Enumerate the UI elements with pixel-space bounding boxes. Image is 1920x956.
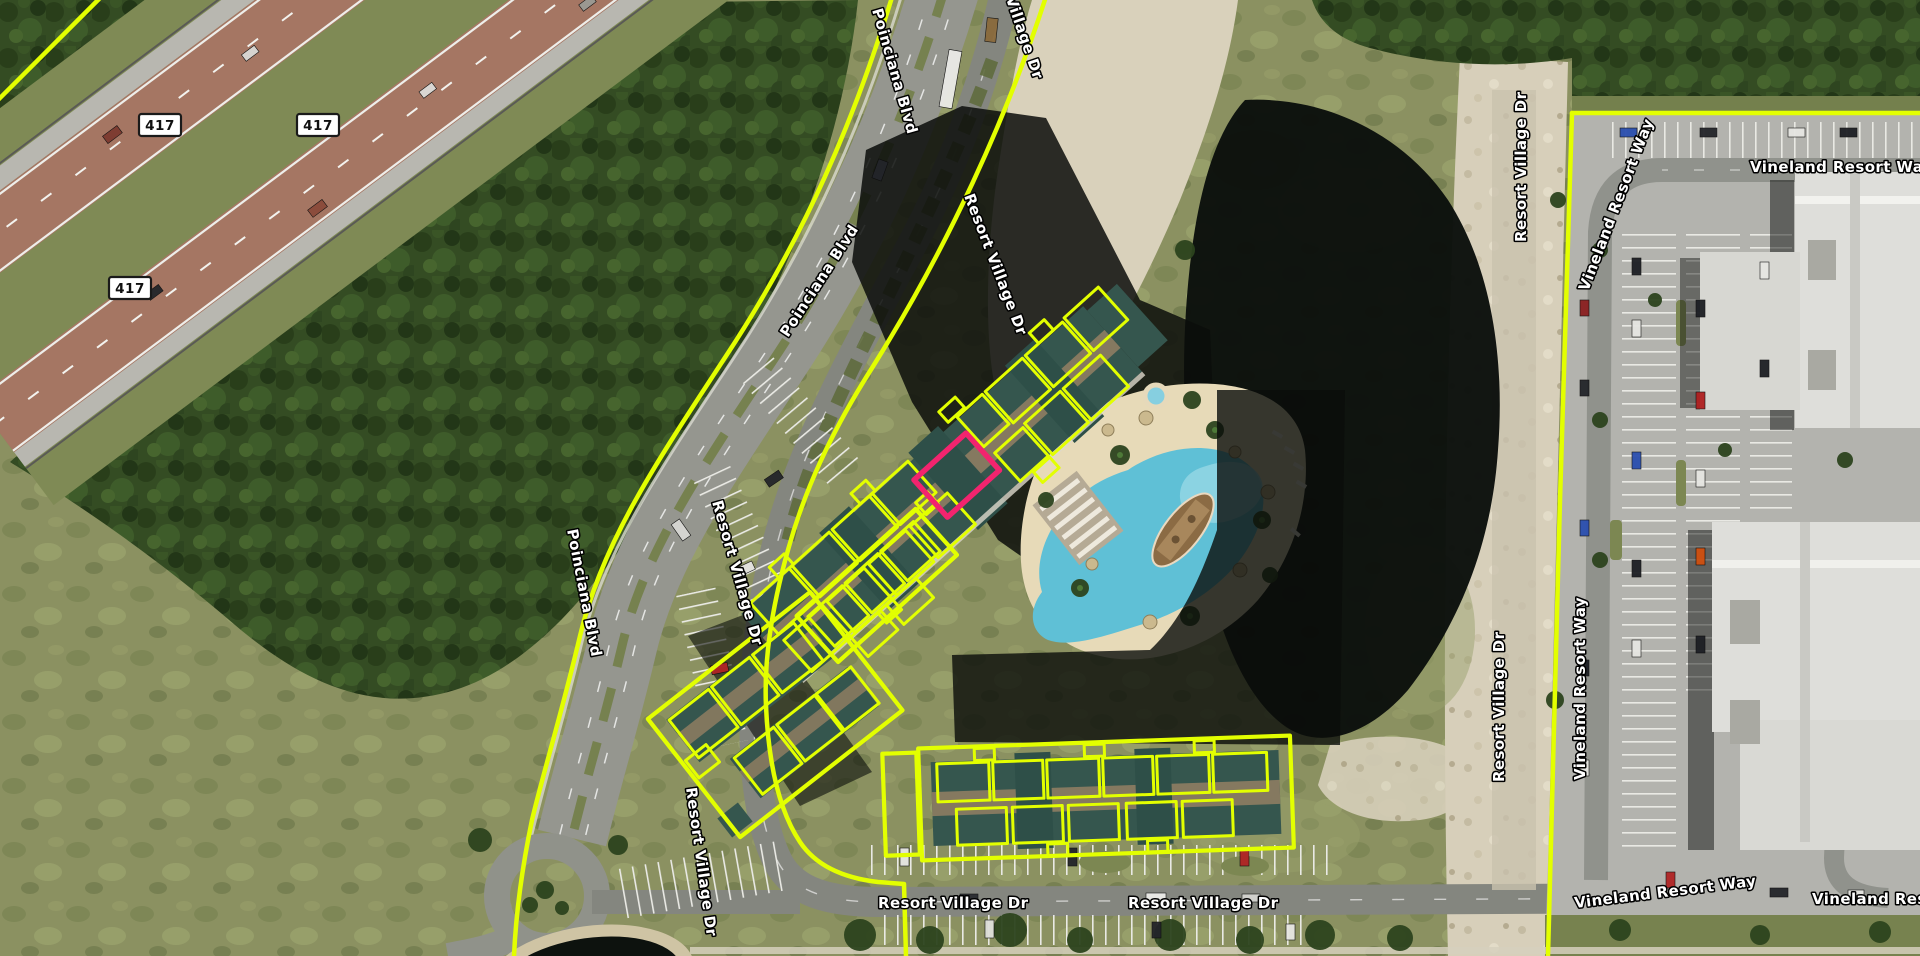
route-shield-417-2: 417	[297, 114, 339, 136]
road-label-resort-village-dr-6: Resort Village Dr	[1128, 894, 1279, 912]
hedge-top-right	[1572, 96, 1920, 113]
tree-band-top-right	[1572, 0, 1920, 96]
svg-text:417: 417	[303, 118, 333, 134]
svg-text:417: 417	[145, 118, 175, 134]
svg-text:417: 417	[115, 281, 145, 297]
sidewalk-bottom	[690, 947, 1920, 954]
road-label-resort-village-dr-5: Resort Village Dr	[878, 894, 1029, 912]
road-label-vineland-resort-way-5: Vineland Resort Way	[1812, 890, 1920, 908]
road-label-vineland-resort-way-3: Vineland Resort Way	[1571, 597, 1589, 780]
road-label-resort-village-dr-8: Resort Village Dr	[1490, 631, 1508, 782]
road-label-resort-village-dr-7: Resort Village Dr	[1512, 91, 1530, 242]
spa-pool	[1145, 385, 1167, 407]
route-shield-417-3: 417	[109, 277, 151, 299]
aerial-map-canvas: Poinciana Blvd Poinciana Blvd Poinciana …	[0, 0, 1920, 956]
map-viewport[interactable]: Poinciana Blvd Poinciana Blvd Poinciana …	[0, 0, 1920, 956]
route-shield-417-1: 417	[139, 114, 181, 136]
road-label-vineland-resort-way-2: Vineland Resort Way	[1750, 158, 1920, 176]
